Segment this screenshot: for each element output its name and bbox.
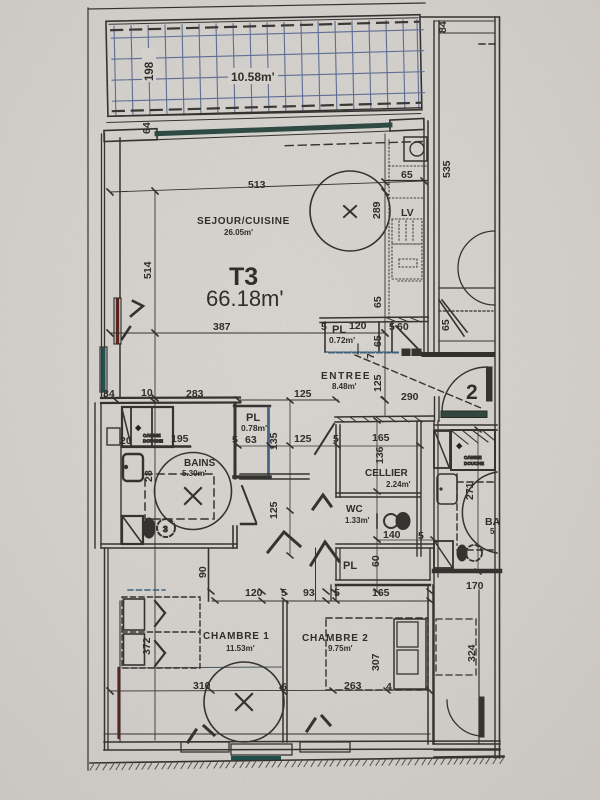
- svg-text:20: 20: [120, 435, 132, 447]
- svg-text:2.24m': 2.24m': [386, 480, 411, 489]
- svg-text:DOUCHE: DOUCHE: [143, 439, 163, 444]
- svg-text:CABINE: CABINE: [143, 433, 161, 438]
- svg-text:125: 125: [294, 433, 312, 445]
- svg-text:65: 65: [372, 335, 384, 347]
- svg-text:4: 4: [386, 681, 392, 693]
- svg-text:65: 65: [401, 169, 413, 181]
- svg-text:WC: WC: [346, 504, 363, 515]
- svg-text:263: 263: [344, 680, 362, 692]
- svg-text:5.30m': 5.30m': [182, 469, 207, 478]
- svg-text:198: 198: [144, 61, 156, 81]
- svg-text:120: 120: [349, 320, 367, 332]
- svg-text:5: 5: [334, 587, 340, 599]
- svg-text:307: 307: [370, 653, 382, 671]
- svg-text:5: 5: [333, 433, 339, 445]
- svg-text:165: 165: [372, 432, 390, 444]
- svg-text:271: 271: [464, 482, 476, 500]
- svg-text:65: 65: [372, 296, 384, 308]
- svg-text:5: 5: [418, 530, 424, 542]
- svg-text:5: 5: [490, 527, 495, 536]
- svg-text:1.33m': 1.33m': [345, 516, 370, 525]
- svg-text:513: 513: [248, 179, 266, 191]
- svg-text:0.78m': 0.78m': [241, 423, 267, 433]
- svg-text:84: 84: [437, 21, 449, 33]
- svg-text:26.05m': 26.05m': [224, 228, 253, 237]
- svg-text:5: 5: [389, 321, 395, 333]
- svg-text:125: 125: [268, 501, 280, 519]
- svg-text:CELLIER: CELLIER: [365, 468, 409, 479]
- svg-text:28: 28: [143, 470, 155, 482]
- svg-text:6: 6: [281, 681, 287, 693]
- svg-text:9.75m': 9.75m': [328, 644, 353, 653]
- svg-text:5: 5: [321, 321, 327, 333]
- svg-text:136: 136: [374, 446, 386, 464]
- svg-text:66.18m': 66.18m': [206, 286, 284, 311]
- svg-text:195: 195: [171, 433, 189, 445]
- svg-text:2: 2: [466, 381, 478, 404]
- svg-text:140: 140: [383, 529, 401, 541]
- svg-text:10.58m': 10.58m': [231, 70, 275, 84]
- svg-text:PL: PL: [343, 560, 357, 572]
- svg-text:324: 324: [466, 644, 478, 662]
- svg-text:165: 165: [372, 587, 390, 599]
- svg-text:CABINE: CABINE: [464, 455, 482, 460]
- svg-text:ENTREE: ENTREE: [321, 371, 371, 382]
- svg-text:34: 34: [103, 388, 115, 400]
- svg-text:3: 3: [163, 524, 168, 534]
- svg-text:8.48m': 8.48m': [332, 382, 357, 391]
- svg-text:90: 90: [197, 566, 209, 578]
- svg-text:64: 64: [141, 122, 153, 134]
- svg-text:135: 135: [268, 432, 280, 450]
- svg-text:170: 170: [466, 580, 484, 592]
- svg-text:310: 310: [193, 680, 211, 692]
- svg-text:387: 387: [213, 321, 231, 333]
- svg-text:CHAMBRE 1: CHAMBRE 1: [203, 631, 270, 642]
- svg-text:10: 10: [141, 387, 153, 399]
- svg-text:60: 60: [370, 555, 382, 567]
- svg-text:120: 120: [245, 587, 263, 599]
- svg-text:DOUCHE: DOUCHE: [464, 461, 484, 466]
- svg-text:SEJOUR/CUISINE: SEJOUR/CUISINE: [197, 216, 290, 227]
- svg-text:5: 5: [281, 587, 287, 599]
- svg-text:LV: LV: [401, 207, 414, 219]
- svg-text:65: 65: [440, 319, 452, 331]
- svg-text:283: 283: [186, 388, 204, 400]
- svg-text:514: 514: [142, 261, 154, 279]
- svg-text:290: 290: [401, 391, 419, 403]
- svg-text:63: 63: [245, 434, 257, 446]
- svg-text:7: 7: [365, 353, 377, 359]
- svg-text:289: 289: [371, 201, 383, 219]
- svg-text:0.72m': 0.72m': [329, 335, 355, 345]
- svg-text:CHAMBRE 2: CHAMBRE 2: [302, 633, 369, 644]
- svg-text:125: 125: [294, 388, 312, 400]
- svg-text:535: 535: [441, 160, 453, 178]
- svg-text:372: 372: [141, 637, 153, 655]
- svg-text:5: 5: [232, 434, 238, 446]
- svg-text:125: 125: [372, 374, 384, 392]
- svg-text:60: 60: [397, 321, 409, 333]
- svg-text:BAINS: BAINS: [184, 458, 215, 469]
- svg-text:93: 93: [303, 587, 315, 599]
- svg-text:11.53m': 11.53m': [226, 644, 255, 653]
